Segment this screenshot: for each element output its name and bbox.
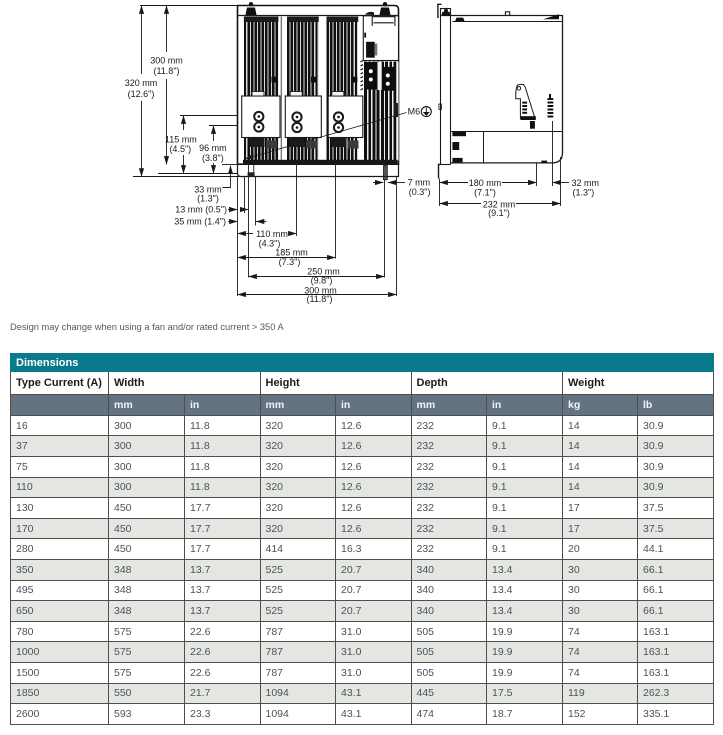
svg-text:(7.3"): (7.3") [279, 257, 301, 267]
svg-text:(1.3"): (1.3") [573, 188, 595, 198]
svg-text:115 mm: 115 mm [165, 135, 197, 145]
svg-text:(7.1"): (7.1") [474, 187, 496, 197]
svg-text:13 mm (0.5"): 13 mm (0.5") [175, 204, 227, 214]
svg-text:180 mm: 180 mm [469, 178, 502, 188]
svg-text:(4.5"): (4.5") [169, 144, 191, 154]
svg-text:(11.8"): (11.8") [306, 294, 332, 304]
svg-text:110 mm: 110 mm [256, 229, 288, 239]
svg-text:7 mm: 7 mm [408, 177, 431, 187]
svg-text:(12.6"): (12.6") [128, 89, 155, 99]
svg-text:(3.8"): (3.8") [202, 153, 224, 163]
svg-text:(1.3"): (1.3") [197, 194, 219, 204]
svg-text:(11.8"): (11.8") [153, 66, 179, 76]
svg-text:35 mm (1.4"): 35 mm (1.4") [174, 216, 226, 226]
svg-text:300 mm: 300 mm [150, 56, 183, 66]
svg-text:185 mm: 185 mm [275, 247, 308, 257]
svg-text:320 mm: 320 mm [125, 78, 158, 88]
svg-text:(9.1"): (9.1") [488, 208, 510, 218]
svg-text:M6: M6 [408, 107, 421, 117]
svg-text:(9.8"): (9.8") [311, 275, 333, 285]
svg-text:32 mm: 32 mm [572, 178, 600, 188]
svg-text:96 mm: 96 mm [199, 143, 227, 153]
svg-text:(0.3"): (0.3") [409, 187, 431, 197]
